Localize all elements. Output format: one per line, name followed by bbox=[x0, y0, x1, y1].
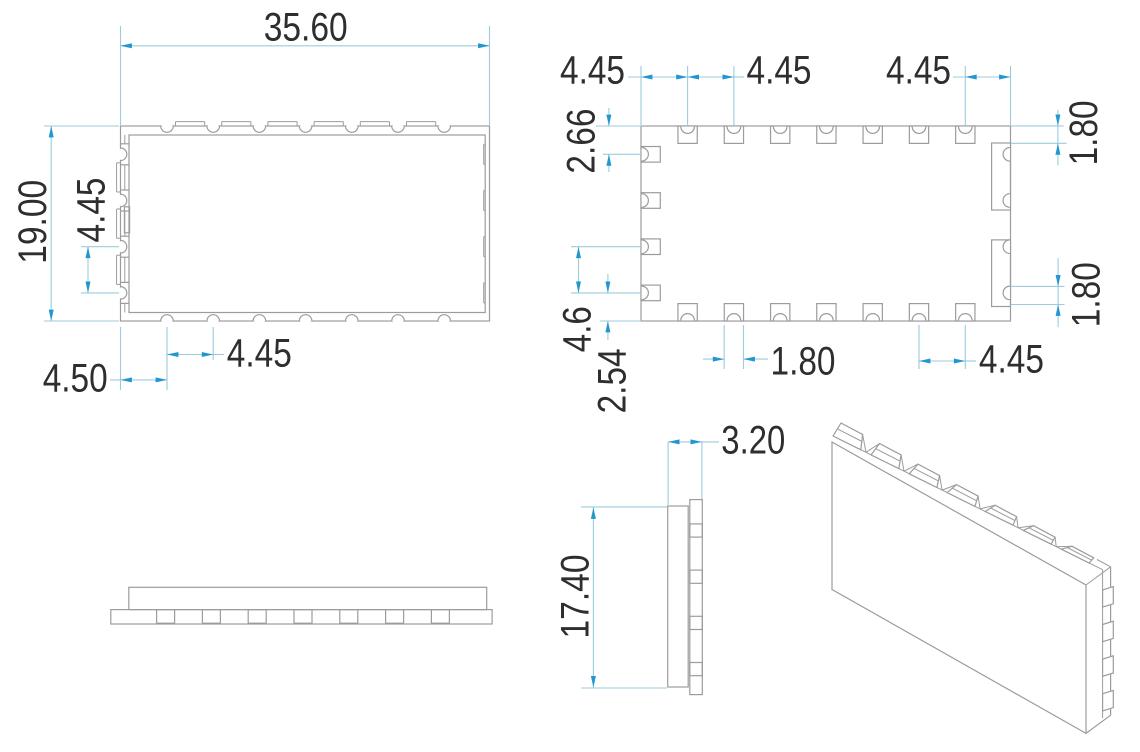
svg-text:4.45: 4.45 bbox=[70, 178, 114, 243]
svg-text:1.80: 1.80 bbox=[1062, 100, 1106, 165]
svg-text:4.45: 4.45 bbox=[886, 49, 951, 93]
svg-text:4.50: 4.50 bbox=[43, 357, 108, 401]
svg-text:35.60: 35.60 bbox=[264, 6, 348, 50]
svg-text:2.54: 2.54 bbox=[590, 348, 634, 413]
svg-text:4.45: 4.45 bbox=[747, 49, 812, 93]
svg-text:4.45: 4.45 bbox=[979, 338, 1044, 382]
svg-text:1.80: 1.80 bbox=[771, 340, 836, 384]
svg-text:2.66: 2.66 bbox=[560, 109, 604, 174]
svg-text:19.00: 19.00 bbox=[11, 180, 55, 264]
svg-text:17.40: 17.40 bbox=[554, 555, 598, 639]
svg-text:4.6: 4.6 bbox=[555, 306, 599, 352]
svg-text:4.45: 4.45 bbox=[227, 332, 292, 376]
svg-text:4.45: 4.45 bbox=[560, 49, 625, 93]
svg-text:1.80: 1.80 bbox=[1065, 262, 1109, 327]
svg-text:3.20: 3.20 bbox=[721, 419, 785, 463]
